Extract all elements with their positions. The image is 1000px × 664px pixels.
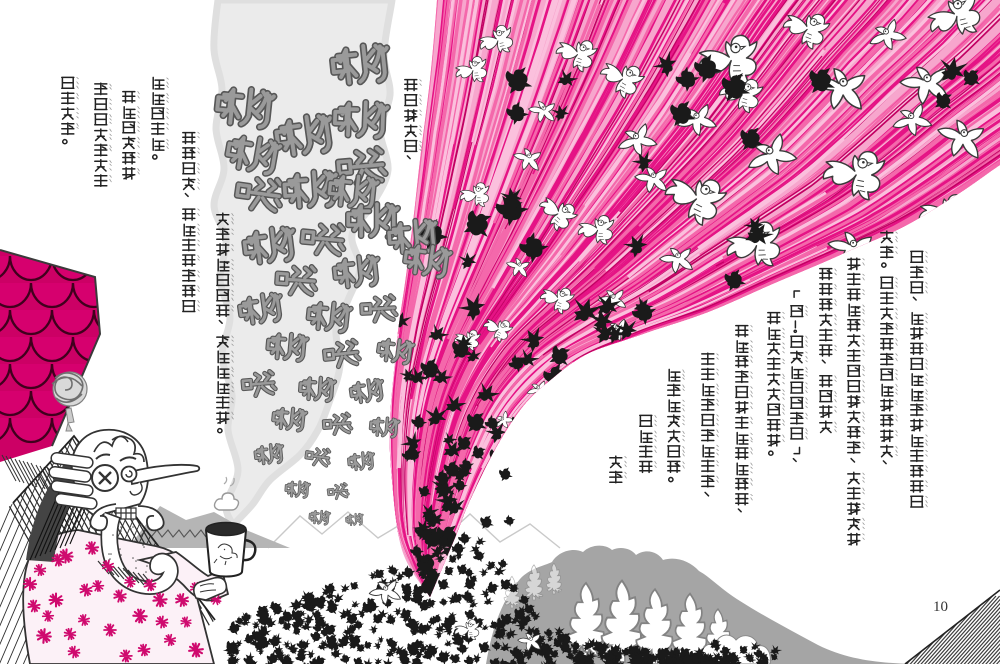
svg-text:10: 10 [933, 599, 948, 615]
